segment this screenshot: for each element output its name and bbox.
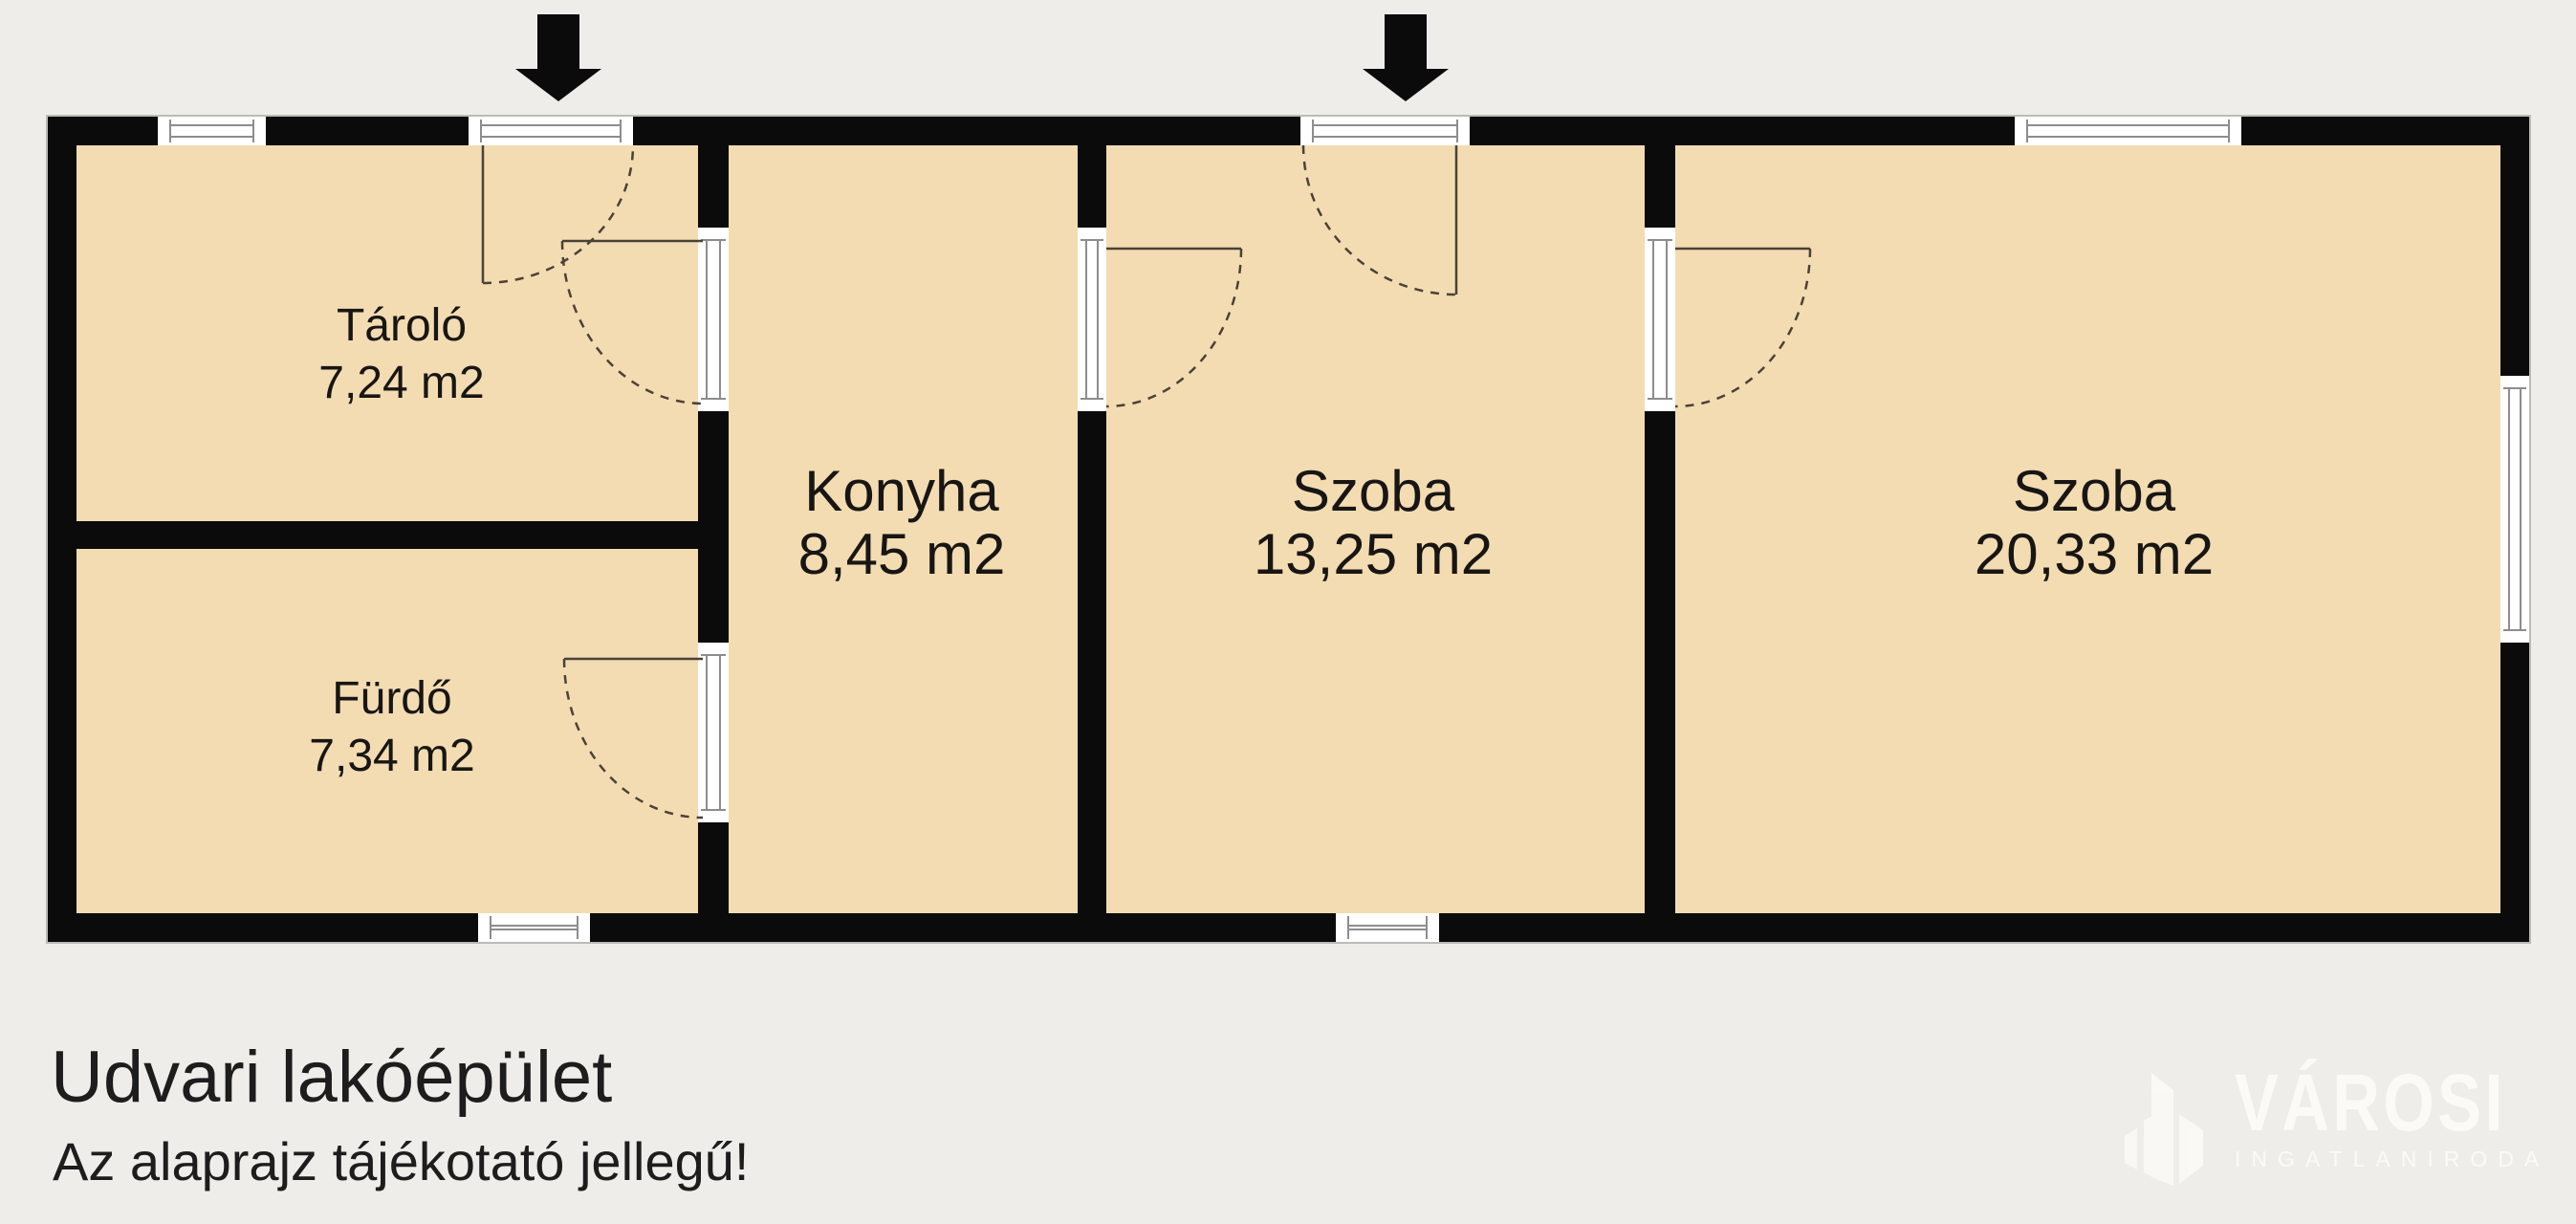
logo-brand: VÁROSI xyxy=(2235,1064,2506,1141)
room-label-szoba-20: Szoba 20,33 m2 xyxy=(1975,460,2214,586)
room-name: Szoba xyxy=(1975,460,2214,523)
plan-disclaimer: Az alaprajz tájékotató jellegű! xyxy=(53,1131,749,1192)
floor-plan-page: Tároló 7,24 m2 Fürdő 7,34 m2 Konyha 8,45… xyxy=(0,0,2576,1224)
room-name: Tároló xyxy=(318,297,484,355)
window-top-szoba20 xyxy=(2015,117,2241,145)
agency-logo: VÁROSI INGATLANIRODA xyxy=(2113,1057,2553,1200)
entrance-arrow-icon-1 xyxy=(515,14,601,101)
room-label-szoba-13: Szoba 13,25 m2 xyxy=(1254,460,1493,586)
window-top-tarolo xyxy=(158,117,266,145)
room-area: 20,33 m2 xyxy=(1975,523,2214,586)
entry-threshold-2 xyxy=(1300,117,1470,145)
door-frame-szoba13-szoba20 xyxy=(1645,228,1675,411)
room-name: Konyha xyxy=(798,460,1006,523)
logo-subtitle: INGATLANIRODA xyxy=(2235,1147,2565,1172)
room-name: Szoba xyxy=(1254,460,1493,523)
room-area: 13,25 m2 xyxy=(1254,523,1493,586)
room-area: 7,24 m2 xyxy=(318,355,484,412)
door-frame-konyha-szoba13 xyxy=(1078,228,1106,411)
window-bottom-furdo xyxy=(478,913,590,942)
door-frame-furdo-konyha xyxy=(698,643,729,822)
window-bottom-szoba13 xyxy=(1336,913,1439,942)
door-frame-tarolo-konyha xyxy=(698,228,729,411)
page-title: Udvari lakóépület xyxy=(51,1038,612,1118)
room-label-konyha: Konyha 8,45 m2 xyxy=(798,460,1006,586)
entrance-arrow-icon-2 xyxy=(1363,14,1449,101)
room-label-tarolo: Tároló 7,24 m2 xyxy=(318,297,484,412)
room-area: 8,45 m2 xyxy=(798,523,1006,586)
room-name: Fürdő xyxy=(309,670,474,728)
buildings-icon xyxy=(2113,1057,2218,1195)
room-area: 7,34 m2 xyxy=(309,728,474,785)
entry-threshold-1 xyxy=(469,117,633,145)
window-right-szoba20 xyxy=(2500,376,2529,643)
room-label-furdo: Fürdő 7,34 m2 xyxy=(309,670,474,785)
